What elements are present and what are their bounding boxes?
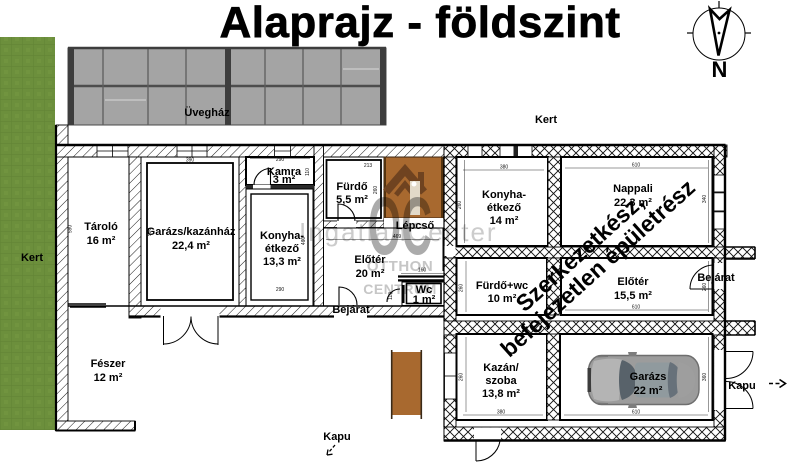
svg-text:Előtér: Előtér (617, 276, 649, 288)
svg-text:Kazán/: Kazán/ (483, 362, 518, 374)
svg-text:15,5 m²: 15,5 m² (614, 290, 652, 302)
svg-text:szoba: szoba (485, 375, 517, 387)
svg-text:Fürdő: Fürdő (336, 181, 367, 193)
svg-text:12 m²: 12 m² (94, 372, 123, 384)
svg-text:OTTHON: OTTHON (367, 258, 433, 275)
svg-text:Alaprajz - földszint: Alaprajz - földszint (219, 0, 620, 47)
svg-text:étkező: étkező (487, 202, 522, 214)
svg-text:290: 290 (276, 157, 285, 163)
svg-text:Garázs: Garázs (630, 371, 667, 383)
svg-text:610: 610 (632, 410, 641, 416)
svg-text:Tároló: Tároló (84, 221, 118, 233)
svg-text:Fészer: Fészer (91, 358, 127, 370)
svg-text:290: 290 (276, 287, 285, 293)
svg-text:380: 380 (500, 165, 509, 171)
svg-text:étkező: étkező (265, 243, 300, 255)
svg-text:Konyha-: Konyha- (260, 230, 304, 242)
svg-text:Bejárat: Bejárat (697, 272, 735, 284)
svg-text:Garázs/kazánház: Garázs/kazánház (147, 226, 236, 238)
svg-text:16 m²: 16 m² (87, 235, 116, 247)
svg-text:Kert: Kert (535, 114, 557, 126)
svg-text:22 m²: 22 m² (634, 385, 663, 397)
svg-text:Kapu: Kapu (323, 431, 351, 443)
svg-text:390: 390 (186, 158, 195, 164)
svg-text:610: 610 (632, 305, 641, 311)
svg-text:3 m²: 3 m² (273, 174, 296, 186)
svg-text:340: 340 (702, 195, 708, 204)
svg-text:CENTRUM: CENTRUM (363, 281, 437, 297)
svg-text:22,4 m²: 22,4 m² (172, 240, 210, 252)
svg-text:380: 380 (497, 410, 506, 416)
svg-text:580: 580 (147, 228, 153, 237)
svg-text:360: 360 (702, 373, 708, 382)
svg-text:590: 590 (68, 225, 74, 234)
svg-text:Kapu: Kapu (728, 380, 756, 392)
svg-text:610: 610 (632, 163, 641, 169)
svg-text:Kert: Kert (21, 252, 43, 264)
svg-text:N: N (712, 57, 728, 82)
svg-text:Konyha-: Konyha- (482, 189, 526, 201)
svg-text:110: 110 (305, 168, 311, 176)
svg-text:13,3 m²: 13,3 m² (263, 256, 301, 268)
svg-text:13,8 m²: 13,8 m² (482, 388, 520, 400)
svg-text:Üvegház: Üvegház (184, 106, 230, 119)
svg-text:260: 260 (459, 373, 465, 382)
svg-text:260: 260 (459, 284, 465, 293)
svg-text:213: 213 (364, 163, 373, 169)
svg-text:260: 260 (457, 201, 463, 210)
